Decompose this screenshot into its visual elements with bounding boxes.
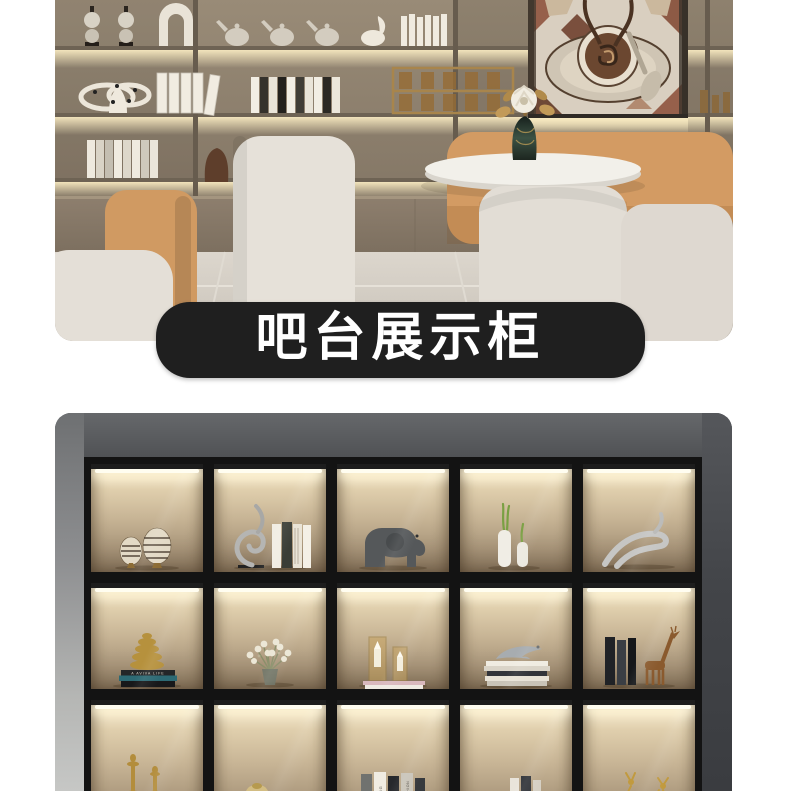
books-giraffe-icon — [583, 588, 695, 689]
cabinet-cell-r3c3: EXPERT LIVING AMERICAN FASHION — [337, 700, 449, 791]
svg-text:A AVIVA LIFE: A AVIVA LIFE — [131, 672, 164, 676]
product-detail-image: 吧台展示柜 — [0, 0, 790, 791]
cabinet-cell-r1c3 — [337, 464, 449, 572]
reel-bookends-icon — [460, 705, 572, 791]
cabinet-cell-r2c5 — [583, 583, 695, 689]
cabinet-cell-r1c4 — [460, 464, 572, 572]
svg-text:EXPERT LIVING: EXPERT LIVING — [378, 786, 383, 791]
cabinet-left-panel — [55, 413, 84, 791]
cabinet-cell-r2c3 — [337, 583, 449, 689]
banner-text: 吧台展示柜 — [255, 312, 545, 364]
cabinet-grid: A AVIVA LIFE — [84, 457, 702, 791]
candle-holders-icon — [337, 588, 449, 689]
cabinet-cell-r3c2 — [214, 700, 326, 791]
jars-icon — [214, 705, 326, 791]
cabinet-cell-r2c1: A AVIVA LIFE — [91, 583, 203, 689]
cabinet-cell-r1c5 — [583, 464, 695, 572]
cabinet-cell-r1c1 — [91, 464, 203, 572]
svg-text:AMERICAN FASHION: AMERICAN FASHION — [406, 781, 410, 791]
white-vases-icon — [460, 469, 572, 572]
cabinet-cell-r3c4 — [460, 700, 572, 791]
deer-sculpture-icon — [583, 469, 695, 572]
candlesticks-books-icon: GONE GIRL LIVEST — [91, 705, 203, 791]
cabinet-cell-r2c4 — [460, 583, 572, 689]
bird-books-icon — [460, 588, 572, 689]
striped-eggs-icon — [91, 469, 203, 572]
cabinet-right-panel — [702, 413, 732, 791]
leaning-books-icon — [157, 73, 220, 116]
cabinet-cell-r1c2 — [214, 464, 326, 572]
cabinet-cell-r2c2 — [214, 583, 326, 689]
lounge-illustration — [55, 0, 733, 341]
cabinet-photo[interactable]: A AVIVA LIFE — [55, 413, 732, 791]
cabinet-top-panel — [55, 413, 732, 457]
cabinet-cell-r3c1: GONE GIRL LIVEST — [91, 700, 203, 791]
upright-books-icon: EXPERT LIVING AMERICAN FASHION — [337, 705, 449, 791]
bouquet-icon — [214, 588, 326, 689]
glass-cup-rack-icon — [393, 68, 513, 113]
cabinet-cell-r3c5 — [583, 700, 695, 791]
lounge-photo[interactable] — [55, 0, 733, 341]
elephant-icon — [337, 469, 449, 572]
chair-white-far-left — [55, 250, 173, 341]
title-banner: 吧台展示柜 — [156, 302, 645, 378]
swirl-sculpture-books-icon — [214, 469, 326, 572]
beehive-books-icon: A AVIVA LIFE — [91, 588, 203, 689]
wire-figurines-icon — [583, 705, 695, 791]
